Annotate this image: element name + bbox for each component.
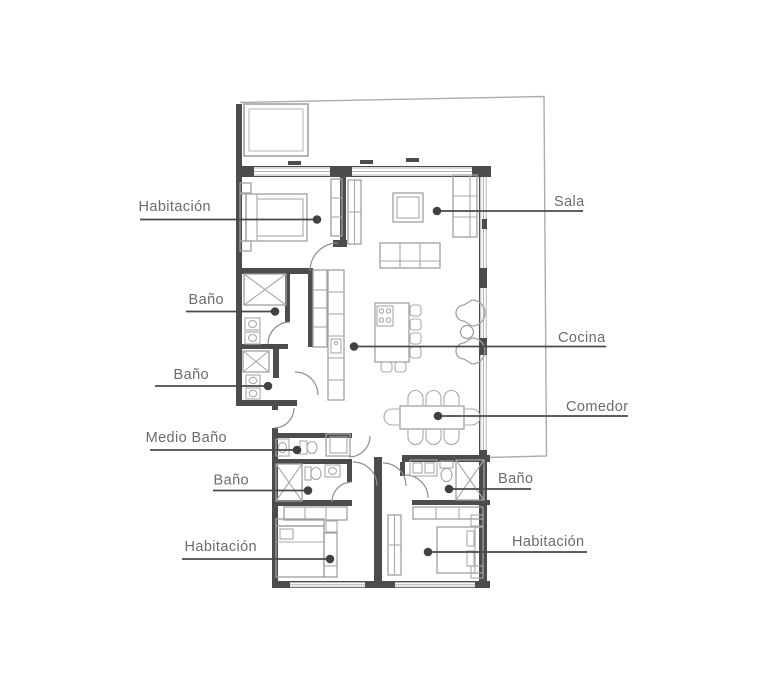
bed-lower-left xyxy=(276,519,337,577)
dining-chair xyxy=(408,430,423,445)
door-vestibule xyxy=(295,372,318,395)
room-label-half-bath: Medio Baño xyxy=(146,430,227,446)
bathroom-lower-left-fixtures xyxy=(276,464,340,501)
door-bathroom-right xyxy=(405,475,428,498)
windows xyxy=(254,167,487,587)
door-entry xyxy=(274,408,294,428)
dresser-lower-left xyxy=(284,507,347,520)
labels: Habitación Baño Baño Medio Baño Baño Hab… xyxy=(138,194,628,563)
dining-chair xyxy=(444,430,459,445)
door-bathroom-1 xyxy=(268,322,290,344)
room-label-bathroom-lower-right: Baño xyxy=(498,471,533,487)
bathroom-lower-right-fixtures xyxy=(410,460,484,500)
pillow xyxy=(467,531,474,546)
room-label-bathroom-lower-left: Baño xyxy=(214,473,249,489)
stool xyxy=(410,333,421,344)
bed-upper-left xyxy=(240,183,307,251)
bathroom-upper-2-fixtures xyxy=(243,351,269,399)
bed-lower-right xyxy=(388,515,483,578)
stool xyxy=(410,305,421,316)
dining-chair xyxy=(408,391,423,405)
room-label-bathroom-upper-1: Baño xyxy=(189,292,224,308)
sink xyxy=(325,465,340,477)
toilet xyxy=(440,461,453,468)
floor-plan: Habitación Baño Baño Medio Baño Baño Hab… xyxy=(0,0,768,690)
kitchen-cabinets xyxy=(313,270,344,400)
sink xyxy=(245,318,260,330)
stool xyxy=(410,347,421,358)
toilet xyxy=(305,467,311,480)
sink xyxy=(246,375,260,386)
door-half-bath xyxy=(349,436,370,457)
loveseat xyxy=(453,175,477,237)
pillow xyxy=(280,529,293,539)
room-label-kitchen: Cocina xyxy=(558,330,606,346)
stool xyxy=(381,362,392,372)
terrace-square xyxy=(244,104,308,156)
room-label-bedroom-lower-right: Habitación xyxy=(512,534,585,550)
sofa xyxy=(380,243,440,268)
room-label-bedroom-lower-left: Habitación xyxy=(184,539,257,555)
toilet xyxy=(245,332,260,344)
room-label-living-room: Sala xyxy=(554,194,585,210)
dining-chair xyxy=(384,409,399,425)
stove xyxy=(377,306,393,326)
dining-set xyxy=(384,391,480,445)
dining-chair xyxy=(465,409,480,425)
stool xyxy=(410,319,421,330)
toilet xyxy=(246,388,260,399)
bathroom-upper-1-fixtures xyxy=(244,274,286,344)
dining-chair xyxy=(426,430,441,445)
door-bathroom-lower-left xyxy=(332,482,352,502)
door-corridor xyxy=(353,462,377,486)
dresser-lower-right xyxy=(413,507,483,519)
wardrobe-upper-left xyxy=(348,180,361,244)
sink-vanity xyxy=(410,460,437,476)
stool xyxy=(395,362,406,372)
dining-chair xyxy=(444,391,459,405)
room-label-bedroom-upper-left: Habitación xyxy=(138,199,211,215)
room-label-bathroom-upper-2: Baño xyxy=(174,367,209,383)
round-side-table xyxy=(461,326,474,339)
coffee-table xyxy=(393,193,423,222)
kitchen-island xyxy=(375,303,421,372)
toilet xyxy=(300,441,307,454)
pillow xyxy=(467,551,474,566)
door-bedroom-upper xyxy=(310,243,338,271)
dining-chair xyxy=(426,391,441,405)
room-label-dining-room: Comedor xyxy=(566,399,628,415)
nightstand xyxy=(326,521,337,532)
